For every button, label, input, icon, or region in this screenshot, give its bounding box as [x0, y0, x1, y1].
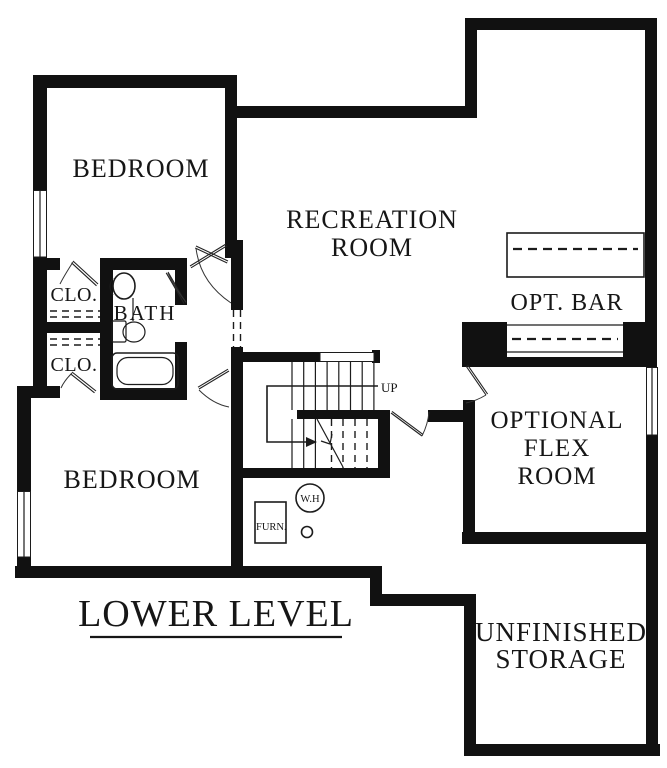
water-heater: W.H [296, 484, 324, 512]
plan-title-text: LOWER LEVEL [78, 593, 354, 635]
cased-opening-hall [234, 310, 241, 347]
room-label-bedroom-upper: BEDROOM [72, 154, 209, 183]
door-flex-room [466, 365, 488, 403]
floor-plan-image: UP [0, 0, 667, 768]
stair-treads-lower-dashed [332, 419, 368, 468]
room-label-storage-2: STORAGE [495, 644, 626, 674]
water-heater-label: W.H [300, 494, 320, 505]
bath-fixtures [110, 273, 178, 389]
room-label-bedroom-lower: BEDROOM [63, 465, 200, 494]
room-label-opt-bar: OPT. BAR [511, 290, 624, 316]
furnace-label: FURN. [256, 522, 287, 533]
floor-plan-drawing: UP [0, 0, 667, 768]
window-bedroom-lower [18, 492, 31, 558]
pass-through-opening [507, 325, 623, 352]
room-label-bath: BATH [114, 301, 177, 325]
floor-drain [302, 527, 313, 538]
room-label-closet-lower: CLO. [51, 354, 98, 376]
room-label-recreation-1: RECREATION [286, 205, 458, 234]
door-bedroom-lower [198, 369, 229, 407]
bathtub [112, 353, 178, 389]
utilities: W.H FURN. [255, 484, 324, 543]
room-label-closet-upper: CLO. [51, 284, 98, 306]
room-label-flex-2: FLEX [524, 435, 591, 462]
stair-railing [320, 353, 374, 362]
door-closet-upper [60, 261, 98, 286]
furnace: FURN. [255, 502, 287, 543]
window-flex-room [647, 368, 658, 436]
room-label-recreation-2: ROOM [331, 233, 413, 262]
door-stair-hall [391, 411, 429, 436]
room-label-flex-3: ROOM [517, 463, 596, 490]
room-label-flex-1: OPTIONAL [491, 407, 624, 434]
plan-title: LOWER LEVEL [78, 593, 354, 637]
room-label-storage-1: UNFINISHED [475, 617, 647, 647]
stairs-up-label: UP [381, 380, 398, 395]
window-bedroom-upper [34, 191, 47, 258]
bar-counter [507, 233, 644, 277]
stair-break-line [317, 419, 343, 467]
